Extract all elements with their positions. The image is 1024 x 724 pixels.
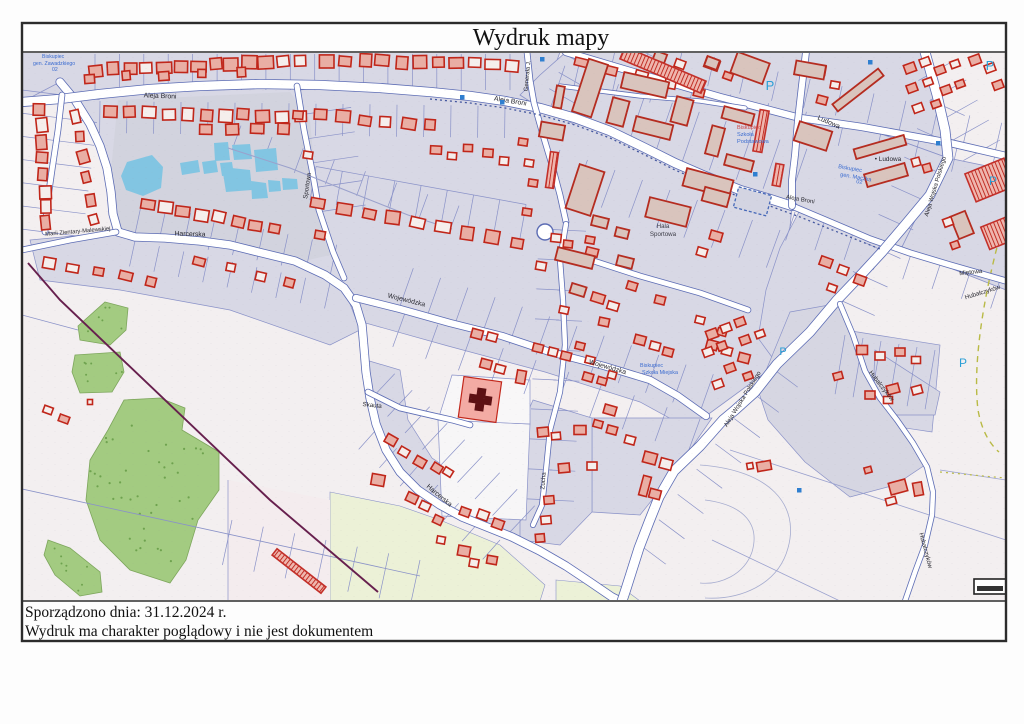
svg-text:Sporządzono dnia: 31.12.2024 r: Sporządzono dnia: 31.12.2024 r. <box>25 604 226 621</box>
svg-text:Wydruk ma charakter poglądowy: Wydruk ma charakter poglądowy i nie jest… <box>25 623 373 640</box>
svg-text:Wydruk mapy: Wydruk mapy <box>473 25 610 51</box>
